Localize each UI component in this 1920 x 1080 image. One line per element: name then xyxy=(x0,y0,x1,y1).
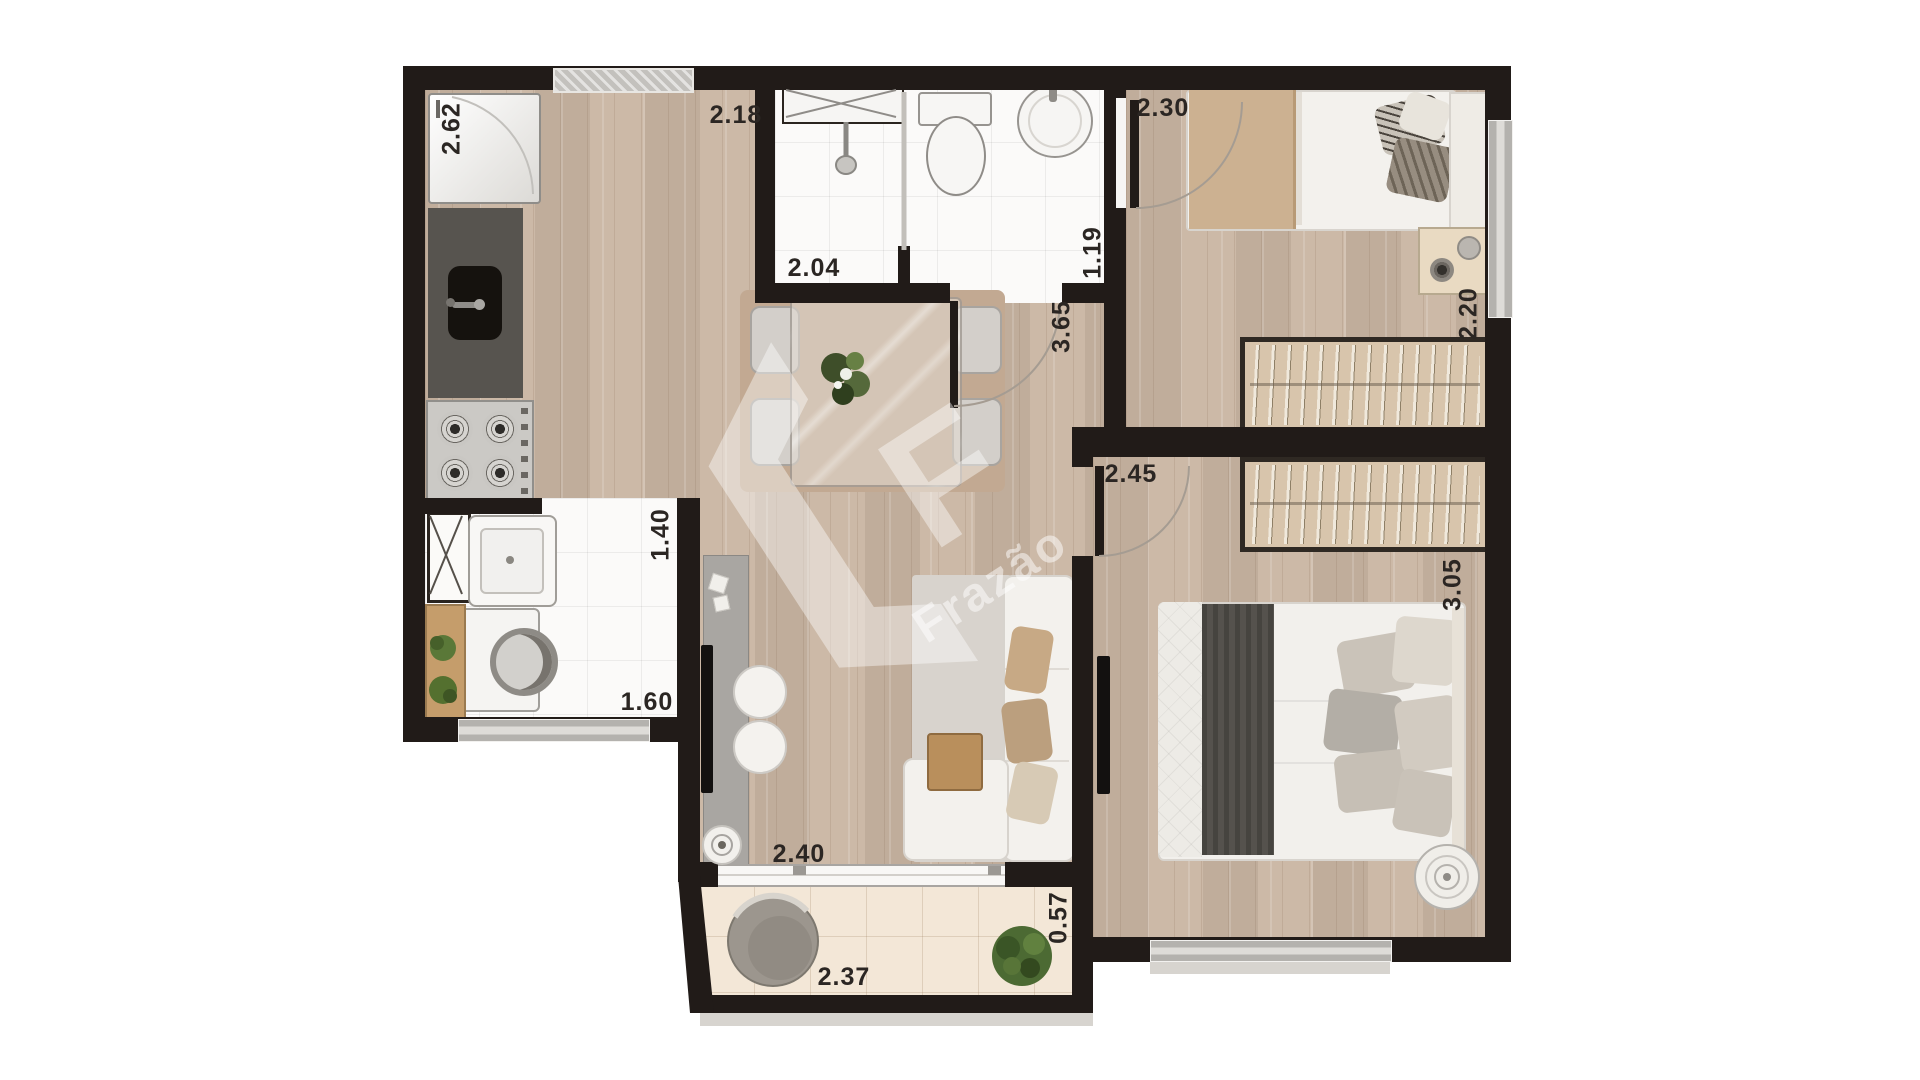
balcony-plant xyxy=(992,926,1052,986)
bedroom2-side-table xyxy=(1415,845,1479,909)
dim-bedroom2-depth: 3.05 xyxy=(1439,550,1468,620)
overlay: F Frazão xyxy=(0,0,1920,1080)
dim-bathroom-basin-width: 1.19 xyxy=(1079,218,1108,288)
dim-living-width: 2.40 xyxy=(764,840,834,869)
shower-head xyxy=(836,156,856,174)
dim-bedroom2-width: 2.45 xyxy=(1096,460,1166,489)
laundry-plants xyxy=(429,635,457,704)
dim-bedroom1-width: 2.30 xyxy=(1128,94,1198,123)
dim-living-length: 3.65 xyxy=(1048,292,1077,362)
dining-plant xyxy=(821,352,870,405)
bathroom-door-arc xyxy=(954,303,1060,406)
watermark-logo: F Frazão xyxy=(670,267,1094,727)
balcony-table xyxy=(728,896,818,986)
dim-laundry-depth: 1.40 xyxy=(647,500,676,570)
laundry-cabinet-x xyxy=(430,516,462,594)
living-poufs xyxy=(703,666,786,864)
dim-refrigerator-wall: 2.62 xyxy=(438,94,467,164)
dim-balcony-depth: 0.57 xyxy=(1045,883,1074,953)
dim-bathroom-shower-width: 2.04 xyxy=(779,254,849,283)
shower-niche-x xyxy=(786,90,896,117)
dim-bedroom1-depth: 2.20 xyxy=(1455,279,1484,349)
dim-balcony-width: 2.37 xyxy=(809,963,879,992)
dim-kitchen-width: 2.18 xyxy=(701,101,771,130)
dim-laundry-width: 1.60 xyxy=(612,688,682,717)
floor-plan: F Frazão 2.62 2.18 2.04 1.19 2.30 2.20 3… xyxy=(0,0,1920,1080)
